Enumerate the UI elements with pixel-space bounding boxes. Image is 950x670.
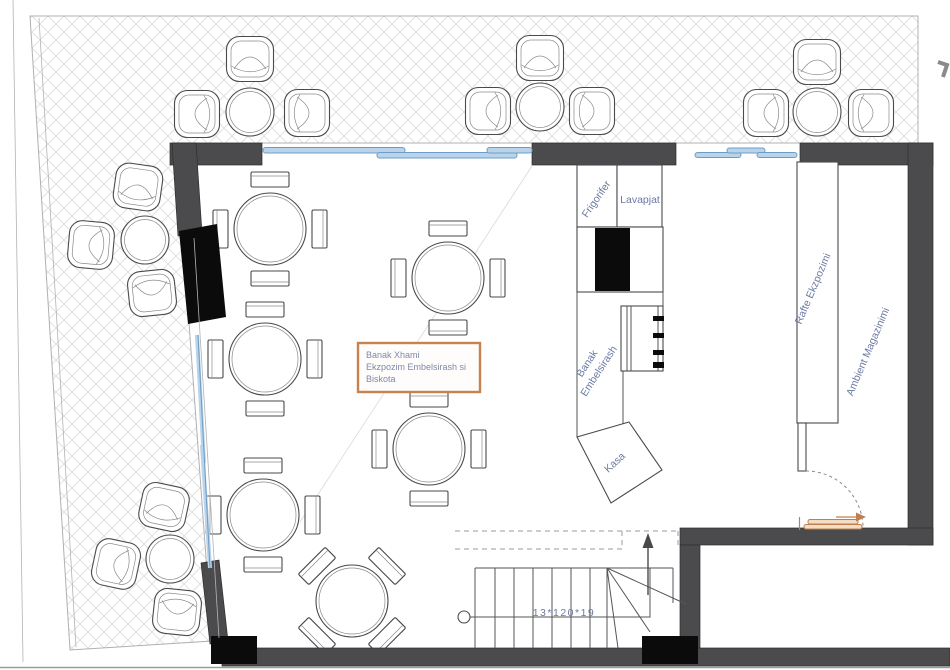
outdoor-armchair bbox=[67, 220, 116, 271]
window-front-left bbox=[263, 148, 532, 159]
indoor-table bbox=[391, 221, 505, 335]
outdoor-table bbox=[793, 88, 841, 136]
label-lavapjat: Lavapjat bbox=[620, 194, 660, 206]
label-banak-embelsirash: Banak Embelsirash bbox=[567, 336, 620, 399]
outdoor-armchair bbox=[151, 587, 202, 637]
outdoor-table bbox=[146, 535, 194, 583]
black-corner-block bbox=[211, 636, 257, 664]
door-symbol bbox=[800, 513, 867, 531]
indoor-furniture-layer bbox=[206, 172, 505, 670]
indoor-table bbox=[208, 302, 322, 416]
indoor-table bbox=[213, 172, 327, 286]
outdoor-table bbox=[226, 88, 274, 136]
storage-room bbox=[797, 162, 866, 530]
window-front-right bbox=[695, 148, 797, 158]
outdoor-table bbox=[516, 83, 564, 131]
outdoor-armchair bbox=[285, 90, 330, 137]
indoor-table bbox=[206, 458, 320, 572]
wall-bottom bbox=[222, 648, 950, 666]
outdoor-armchair bbox=[112, 161, 165, 212]
stair-rail-post bbox=[458, 611, 470, 623]
display-case bbox=[621, 306, 664, 371]
staircase bbox=[455, 531, 698, 664]
indoor-table bbox=[372, 392, 486, 506]
annotation-line-3: Biskota bbox=[366, 374, 396, 384]
stair-up-arrow bbox=[643, 533, 654, 595]
outdoor-armchair bbox=[227, 37, 274, 82]
indoor-table bbox=[271, 520, 432, 670]
label-ambient-magazinimi: Ambient Magazinimi bbox=[844, 306, 892, 398]
wall-lower-right bbox=[680, 545, 700, 650]
outdoor-armchair bbox=[744, 90, 789, 137]
annotation-box: Banak Xhami Ekzpozim Embelsirash si Bisk… bbox=[358, 343, 480, 392]
outdoor-armchair bbox=[517, 36, 564, 81]
outdoor-table bbox=[121, 216, 169, 264]
label-stair-dimension: 13*120*19 bbox=[533, 607, 596, 619]
outdoor-armchair bbox=[794, 40, 841, 85]
partition-stub bbox=[798, 423, 806, 471]
wall-top-middle bbox=[532, 143, 676, 165]
floor-plan-drawing: Frigorifer Lavapjat Banak Embelsirash Ka… bbox=[0, 0, 950, 670]
outdoor-armchair bbox=[126, 268, 177, 318]
edge-mark bbox=[938, 62, 947, 77]
black-equipment bbox=[595, 228, 630, 291]
outdoor-armchair bbox=[466, 88, 511, 135]
wall-right bbox=[908, 143, 933, 545]
annotation-line-2: Ekzpozim Embelsirash si bbox=[366, 362, 466, 372]
outdoor-furniture-layer bbox=[67, 36, 894, 637]
floor-plan-sheet: Frigorifer Lavapjat Banak Embelsirash Ka… bbox=[0, 0, 950, 670]
outdoor-armchair bbox=[570, 88, 615, 135]
annotation-line-1: Banak Xhami bbox=[366, 350, 420, 360]
outdoor-armchair bbox=[175, 91, 220, 138]
wall-storage-bottom bbox=[680, 528, 933, 545]
outdoor-armchair bbox=[849, 90, 894, 137]
stair-black-block bbox=[642, 636, 698, 664]
